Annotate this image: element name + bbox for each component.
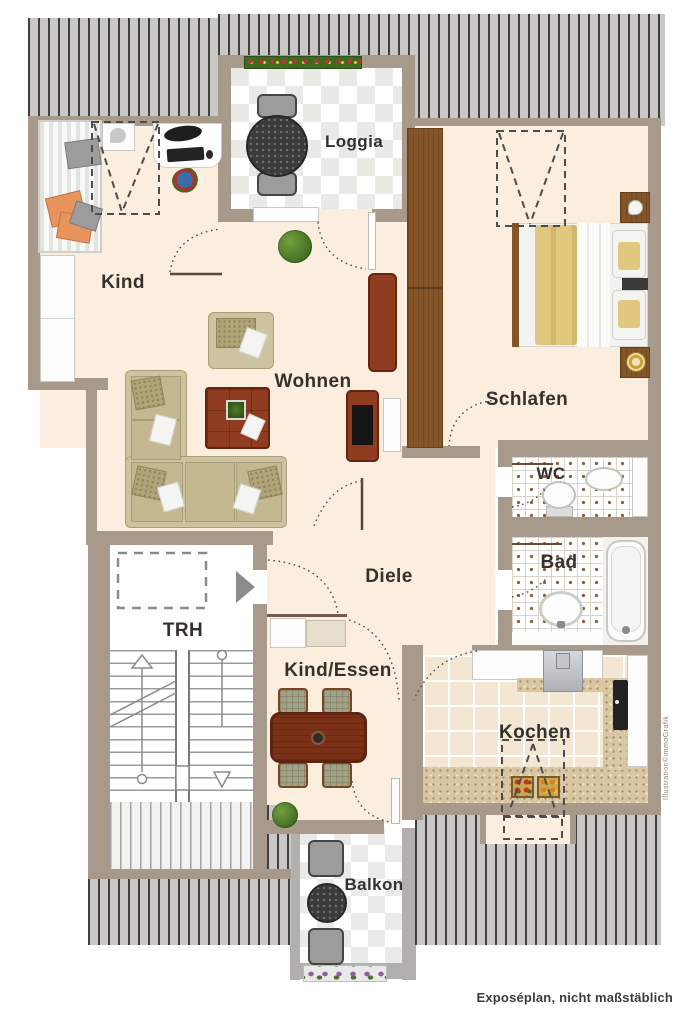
wc-sink xyxy=(585,467,623,491)
loggia-door-leaf xyxy=(368,212,376,270)
coffee-table-plant xyxy=(226,400,246,420)
wohnen-trh-wall xyxy=(97,531,273,545)
loggia-window-sill xyxy=(253,207,319,222)
room-label-kind-essen: Kind/Essen xyxy=(284,660,391,682)
kitchen-bottom-wall xyxy=(402,803,661,815)
kitchen-cabinets-right xyxy=(627,655,648,767)
kitchen-faucet-icon xyxy=(556,653,570,669)
stairwell-roof-hatch-light xyxy=(110,802,253,869)
wohnen-plant xyxy=(278,230,312,263)
roof-hatch-bottom-left xyxy=(88,879,291,945)
balkon-round-table xyxy=(307,883,347,923)
schrank-divider-line xyxy=(408,287,442,289)
loggia-round-table xyxy=(246,115,308,177)
balkon-wall-left xyxy=(290,828,300,980)
room-label-loggia: Loggia xyxy=(325,132,383,152)
nightstand-bottom-lamp-icon xyxy=(626,352,646,372)
trh-stairs-center-rail xyxy=(175,650,190,802)
dining-table-center-knob xyxy=(311,731,325,745)
bad-door-lintel xyxy=(512,543,562,545)
kitchen-stove-knob-icon xyxy=(615,700,619,704)
kind-desk-chair xyxy=(172,168,204,194)
floorplan-canvas: Loggia Kind Wohnen Schlafen WC Bad Diele… xyxy=(0,0,690,1024)
kitchen-dormer-notch xyxy=(480,814,576,844)
bad-sink-faucet-icon xyxy=(557,621,565,628)
dining-chair-top-left xyxy=(278,688,308,714)
fruit-crate-left xyxy=(511,776,534,798)
wohnen-sofa-cushion-4 xyxy=(185,462,235,522)
room-label-bad: Bad xyxy=(540,552,577,574)
fruit-crate-right xyxy=(537,776,560,798)
nightstand-top-lamp-icon xyxy=(628,200,643,215)
bathtub-inner xyxy=(611,546,641,632)
schlafen-bed-runner xyxy=(622,278,648,290)
kind-cupboard-shelf-line xyxy=(41,318,74,319)
bad-wall-left-c xyxy=(498,610,512,645)
wc-bad-divider-wall xyxy=(498,517,648,537)
room-label-wohnen: Wohnen xyxy=(275,371,352,393)
wc-wall-left-a xyxy=(498,457,512,467)
kind-side-table-deco xyxy=(110,128,126,143)
room-label-diele: Diele xyxy=(365,566,412,588)
kind-essen-bottom-wall xyxy=(253,820,384,834)
schlafen-bed-footboard xyxy=(512,223,519,347)
wohnen-tv xyxy=(352,405,373,445)
balkon-door-leaf xyxy=(391,778,400,824)
schlafen-blanket-yellow xyxy=(535,225,577,345)
room-label-kochen: Kochen xyxy=(499,722,571,744)
balkon-chair-top xyxy=(308,840,344,877)
kind-desk-mouse xyxy=(206,150,213,159)
dining-chair-top-right xyxy=(322,688,352,714)
roof-hatch-top-left xyxy=(28,18,218,118)
footer-disclaimer: Exposéplan, nicht maßstäblich xyxy=(476,990,673,1005)
trh-wall-left xyxy=(88,545,110,871)
kind-essen-plant xyxy=(272,802,298,828)
schlafen-pillow-2-yellow xyxy=(618,300,640,328)
schlafen-duvet xyxy=(577,223,610,347)
kind-desk-keyboard xyxy=(167,147,205,163)
kind-essen-top-partition xyxy=(267,614,347,617)
balkon-flower-box xyxy=(303,965,387,982)
room-label-wc: WC xyxy=(536,464,565,484)
kitchen-counter-top xyxy=(472,650,603,680)
schlafen-bottom-wall xyxy=(498,440,648,457)
loggia-flower-box xyxy=(244,56,362,69)
wc-shaft xyxy=(632,457,648,517)
illustrator-watermark: Illustration©immoGrafik xyxy=(663,716,670,800)
room-label-kind: Kind xyxy=(101,272,145,294)
schlafen-pillow-1-yellow xyxy=(618,242,640,270)
wohnen-radiator xyxy=(383,398,401,452)
bathtub-faucet-icon xyxy=(622,626,630,634)
kind-bed-gray-pillow xyxy=(64,138,101,169)
trh-wall-right-upper xyxy=(253,545,267,570)
dining-chair-bottom-right xyxy=(322,762,352,788)
wc-toilet-bowl xyxy=(542,481,576,509)
room-label-balkon: Balkon xyxy=(344,875,403,895)
room-label-schlafen: Schlafen xyxy=(486,389,568,411)
outer-wall-right xyxy=(648,126,661,815)
wohnen-sofa-pillow-1 xyxy=(131,376,166,411)
outer-wall-left-lower xyxy=(86,378,97,545)
kind-essen-sideboard-beige xyxy=(306,620,346,647)
room-label-trh: TRH xyxy=(163,620,203,642)
bad-mat xyxy=(512,632,598,645)
kitchen-stove xyxy=(613,680,628,730)
wohnen-sideboard xyxy=(368,273,397,372)
dining-chair-bottom-left xyxy=(278,762,308,788)
balkon-chair-bottom xyxy=(308,928,344,965)
kind-essen-sideboard-white xyxy=(270,618,306,648)
kitchen-counter-bottom xyxy=(423,767,648,803)
balkon-wall-right xyxy=(402,828,416,980)
kind-essen-right-wall xyxy=(402,645,423,820)
